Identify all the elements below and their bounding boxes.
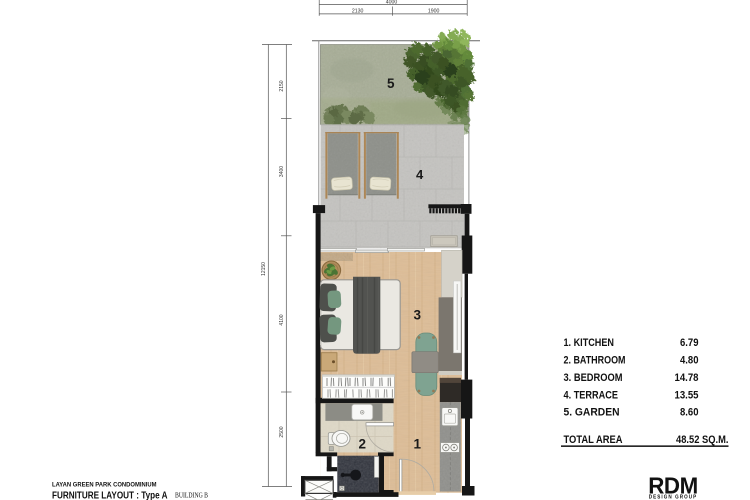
svg-text:3. BEDROOM: 3. BEDROOM xyxy=(564,372,623,384)
svg-text:1: 1 xyxy=(414,437,422,452)
svg-text:2. BATHROOM: 2. BATHROOM xyxy=(564,355,626,367)
svg-text:TOTAL AREA: TOTAL AREA xyxy=(564,434,623,446)
svg-text:FURNITURE LAYOUT : Type A: FURNITURE LAYOUT : Type A xyxy=(52,491,168,500)
svg-text:5: 5 xyxy=(387,76,395,91)
svg-text:4000: 4000 xyxy=(386,0,398,6)
svg-text:14.78: 14.78 xyxy=(675,372,699,384)
svg-text:1. KITCHEN: 1. KITCHEN xyxy=(564,337,615,349)
svg-text:4. TERRACE: 4. TERRACE xyxy=(564,389,619,401)
svg-text:4100: 4100 xyxy=(279,314,285,325)
svg-text:4.80: 4.80 xyxy=(680,355,699,367)
svg-text:2: 2 xyxy=(359,437,367,452)
svg-text:13.55: 13.55 xyxy=(675,389,699,401)
svg-text:2130: 2130 xyxy=(352,8,364,14)
svg-text:12150: 12150 xyxy=(261,262,267,276)
svg-text:3: 3 xyxy=(414,308,422,323)
svg-text:1900: 1900 xyxy=(428,8,440,14)
svg-text:4: 4 xyxy=(416,167,424,182)
svg-text:8.60: 8.60 xyxy=(680,407,699,419)
svg-text:48.52 SQ.M.: 48.52 SQ.M. xyxy=(676,434,729,446)
svg-text:LAYAN GREEN PARK CONDOMINIUM: LAYAN GREEN PARK CONDOMINIUM xyxy=(52,482,157,489)
svg-text:2150: 2150 xyxy=(279,80,285,91)
svg-text:DESIGN GROUP: DESIGN GROUP xyxy=(649,495,698,500)
svg-text:5. GARDEN: 5. GARDEN xyxy=(564,407,620,419)
svg-text:BUILDING B: BUILDING B xyxy=(175,492,208,500)
svg-text:6.79: 6.79 xyxy=(680,337,699,349)
svg-text:2500: 2500 xyxy=(279,426,285,437)
svg-text:3400: 3400 xyxy=(279,166,285,177)
